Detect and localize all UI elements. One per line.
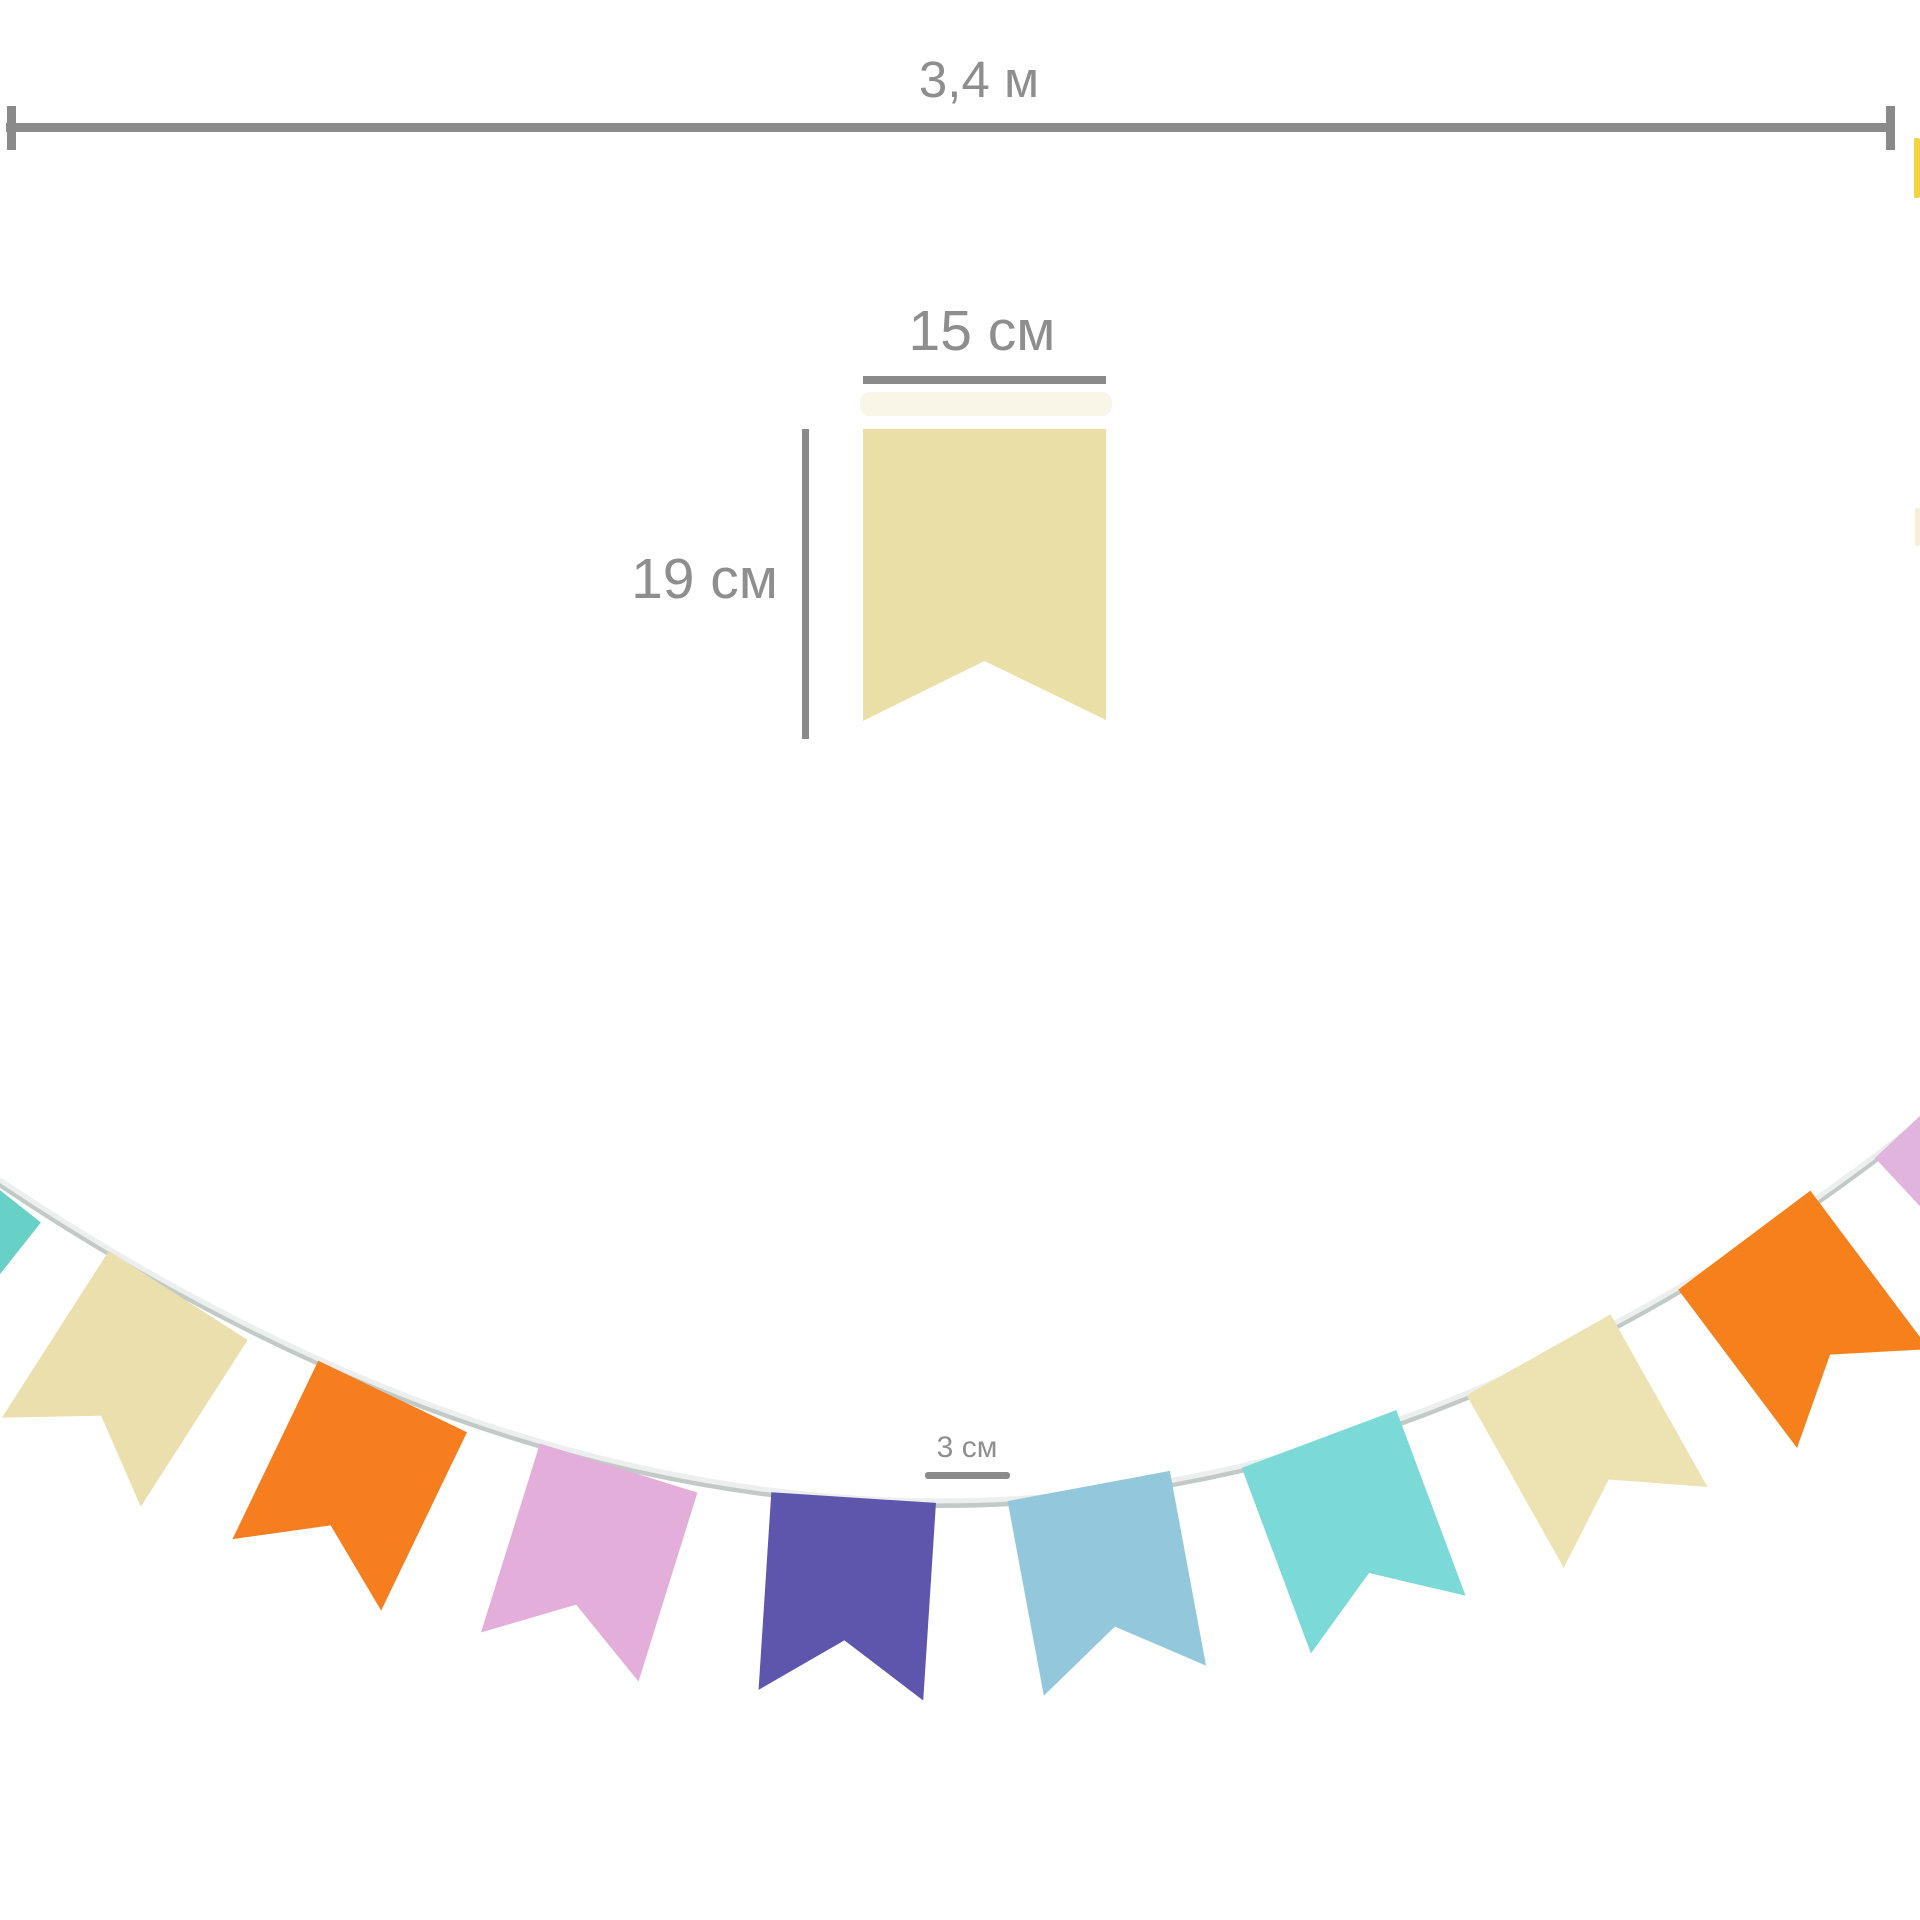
flag-width-line [863, 376, 1106, 384]
flag-height-label: 19 см [600, 551, 778, 608]
total-length-line [6, 123, 1894, 132]
garland-photo [0, 138, 1920, 1701]
garland-flag-7 [1242, 1410, 1466, 1653]
flag-spacing-label: 3 см [937, 1433, 998, 1463]
diagram-flag-shape [863, 429, 1106, 721]
garland-flag-5 [759, 1492, 936, 1700]
total-length-cap-left [7, 106, 16, 150]
product-infographic: 3,4 м 15 см 19 см 3 см [0, 0, 1920, 1920]
garland-flag-8 [1467, 1314, 1708, 1567]
garland-flag-9 [1678, 1191, 1920, 1448]
cropped-flag-fragment-bottom [1915, 508, 1920, 546]
product-photo-layer [0, 0, 1920, 1920]
garland-flag-2 [2, 1251, 248, 1507]
flag-width-label: 15 см [909, 303, 1056, 360]
garland-flag-6 [1008, 1471, 1206, 1696]
total-length-label: 3,4 м [919, 54, 1039, 105]
cropped-flag-fragment-top [1914, 138, 1920, 198]
garland-flag-10 [1875, 1045, 1920, 1302]
flag-spacing-line [925, 1472, 1010, 1479]
garland-flag-1 [0, 1120, 41, 1378]
flag-height-line [802, 429, 809, 739]
total-length-cap-right [1886, 106, 1895, 150]
garland-flag-3 [232, 1361, 467, 1611]
diagram-flag-shadow [860, 392, 1112, 416]
